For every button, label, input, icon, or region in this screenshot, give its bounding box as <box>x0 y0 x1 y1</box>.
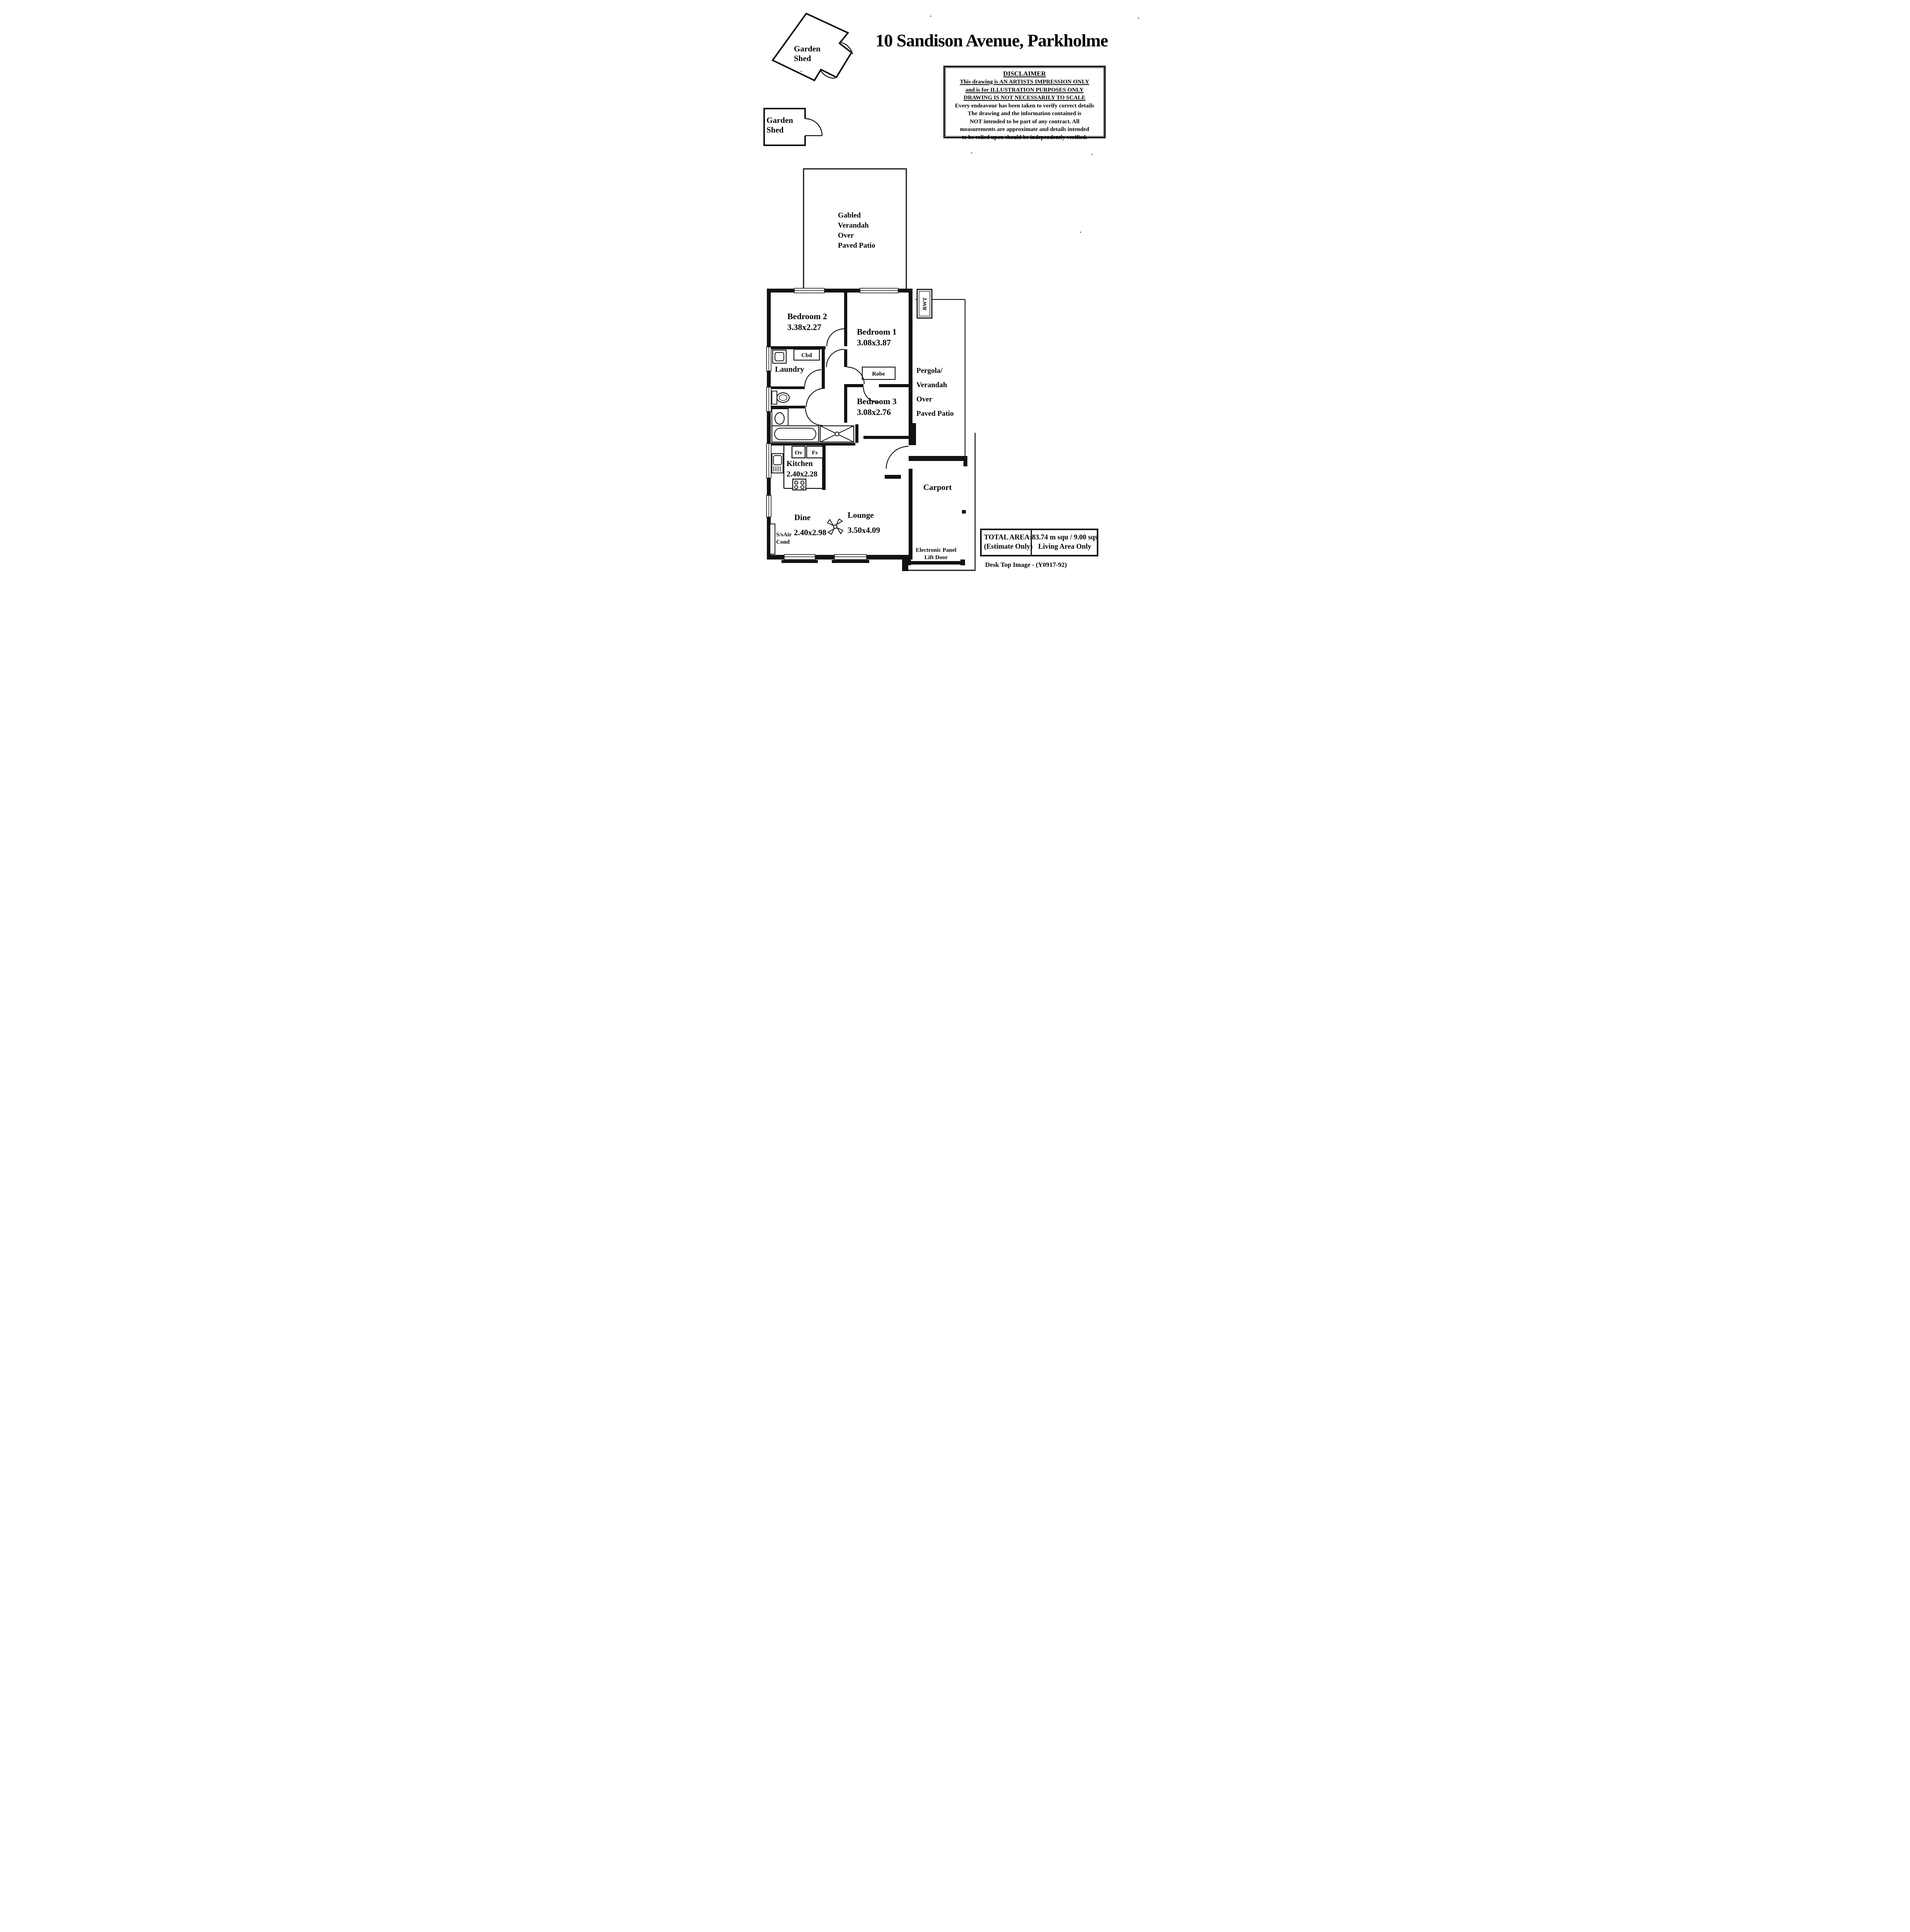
speck <box>1091 154 1093 155</box>
wc-door-arc <box>806 388 825 407</box>
bed1-label: Bedroom 1 <box>857 327 897 337</box>
fan-hub <box>834 525 837 529</box>
carport-wall-stub <box>963 461 967 466</box>
wall-entry-stub <box>885 475 901 479</box>
pergola-verandah: RWT Pergola/ Verandah Over Paved Patio <box>916 289 965 456</box>
total-area-value-line1: 83.74 m squ / 9.00 sqs <box>1032 533 1098 542</box>
total-area-value-line2: Living Area Only <box>1032 542 1098 551</box>
lift-door-label-line2: Lift Door <box>924 554 948 561</box>
shed1-label-line1: Garden <box>794 44 821 53</box>
garden-shed-2: Garden Shed <box>764 109 822 145</box>
wall-right-lower <box>909 469 913 560</box>
oven-label: Ov <box>795 450 802 456</box>
wall-laundry-bottom <box>767 386 805 389</box>
cooktop-burner <box>801 481 804 484</box>
cooktop-burner <box>801 486 804 489</box>
verandah-label-line2: Verandah <box>838 221 869 230</box>
wall-bed3-top-right <box>879 384 909 387</box>
total-area-values: 83.74 m squ / 9.00 sqs Living Area Only <box>1032 530 1098 555</box>
speck <box>930 15 931 17</box>
pergola-label-line2: Verandah <box>916 381 947 389</box>
lounge-dims: 3.50x4.09 <box>848 526 880 535</box>
speck <box>1138 17 1139 19</box>
carport-post-right <box>960 560 965 565</box>
disclaimer-body-line: Every endeavour has been taken to verify… <box>945 102 1104 110</box>
total-area-box: TOTAL AREA: (Estimate Only) 83.74 m squ … <box>980 529 1098 556</box>
bathtub-inner <box>775 428 816 440</box>
bath-door-arc <box>805 408 822 425</box>
bed1-door-arc <box>847 367 864 384</box>
disclaimer-underlined-line: DRAWING IS NOT NECESSARILY TO SCALE <box>945 94 1104 102</box>
speck <box>800 71 802 72</box>
aircon-label-line2: Cond <box>776 539 790 545</box>
disclaimer-body-line: to be relied upon should be independentl… <box>945 134 1104 142</box>
shed2-label-line1: Garden <box>766 116 793 125</box>
verandah-label-line1: Gabled <box>838 211 861 219</box>
disclaimer-body-line: NOT intended to be part of any contract.… <box>945 118 1104 126</box>
disclaimer-body-line: measurements are approximate and details… <box>945 126 1104 134</box>
lounge-label: Lounge <box>848 510 874 520</box>
pergola-outline <box>916 299 965 456</box>
dine-label: Dine <box>794 513 811 522</box>
disclaimer-box: DISCLAIMER This drawing is AN ARTISTS IM… <box>943 66 1106 138</box>
gabled-verandah: Gabled Verandah Over Paved Patio <box>804 169 906 289</box>
garden-shed-1: Garden Shed <box>773 14 853 80</box>
vanity-basin <box>775 413 784 424</box>
shed1-label-line2: Shed <box>794 54 811 63</box>
shower-drain <box>835 432 839 436</box>
bedroom2-label: Bedroom 2 <box>787 311 827 321</box>
pergola-label-line4: Paved Patio <box>916 410 954 418</box>
laundry-label: Laundry <box>775 365 804 374</box>
disclaimer-body-line: The drawing and the information containe… <box>945 110 1104 118</box>
wall-bath-bottom <box>767 443 855 446</box>
laundry-door-arc <box>805 370 821 386</box>
kitchen-label: Kitchen <box>787 459 813 468</box>
cooktop-burner <box>795 486 798 489</box>
wall-right-pier <box>909 423 916 445</box>
carport-top-wall <box>909 456 967 461</box>
aircon-label-line1: S/sAir <box>776 532 792 538</box>
verandah-label-line3: Over <box>838 231 854 240</box>
cupboard-label: Cbd <box>801 352 812 359</box>
dine-dims: 2.40x2.98 <box>794 528 826 537</box>
image-reference-footer: Desk Top Image - (Y0917-92) <box>985 561 1067 569</box>
wall-wc-bottom <box>767 406 805 408</box>
shed2-label-line2: Shed <box>766 125 784 134</box>
front-door-arc <box>886 446 909 469</box>
kitchen-sink-bowl <box>773 456 782 465</box>
pergola-label-line3: Over <box>916 395 933 403</box>
wall-bed3-left <box>844 384 847 423</box>
wall-bed3-top-left <box>844 384 863 387</box>
bed3-label: Bedroom 3 <box>857 396 897 406</box>
hall-door-arc <box>826 349 844 367</box>
page-title: 10 Sandison Avenue, Parkholme <box>874 30 1110 51</box>
panel-lift-door <box>908 561 963 565</box>
total-area-label-line2: (Estimate Only) <box>984 542 1031 551</box>
wall-hall-left <box>822 349 825 388</box>
wall-bath-right <box>855 424 858 443</box>
ceiling-fan <box>827 519 843 535</box>
bed2-door-arc <box>827 329 844 346</box>
robe-label: Robe <box>872 371 885 377</box>
total-area-labels: TOTAL AREA: (Estimate Only) <box>982 530 1032 555</box>
cooktop-burner <box>795 481 798 484</box>
carport: Carport Electronic Panel Lift Door <box>902 433 975 570</box>
wall-bottom-step <box>902 560 908 571</box>
shed2-door-arc <box>805 119 822 136</box>
fridge-space-label: Fs <box>812 450 818 456</box>
window-sill-left <box>782 560 818 563</box>
bed1-dims: 3.08x3.87 <box>857 338 891 347</box>
wall-bed3-bottom <box>863 436 909 439</box>
air-conditioner-unit <box>770 524 775 554</box>
disclaimer-heading: DISCLAIMER <box>945 70 1104 78</box>
laundry-trough-bowl <box>775 352 784 361</box>
wall-left <box>767 289 771 560</box>
verandah-label-line4: Paved Patio <box>838 241 875 250</box>
pergola-label-line1: Pergola/ <box>916 367 943 375</box>
bed3-dims: 3.08x2.76 <box>857 407 891 417</box>
toilet-bowl-inner <box>779 395 787 401</box>
kitchen-dims: 2.40x2.28 <box>787 470 817 478</box>
bedroom2-dims: 3.38x2.27 <box>787 322 821 332</box>
shed1-door-arc-2 <box>821 70 835 78</box>
window-sill-right <box>832 560 869 563</box>
wall-bed2-bottom <box>767 346 826 349</box>
disclaimer-underlined-line: and is for ILLUSTRATION PURPOSES ONLY <box>945 86 1104 94</box>
disclaimer-underlined-line: This drawing is AN ARTISTS IMPRESSION ON… <box>945 78 1104 86</box>
carport-label: Carport <box>923 483 952 492</box>
floor-plan-page: Garden Shed Garden Shed Gabled Verandah … <box>743 0 1167 601</box>
speck <box>971 152 972 153</box>
wall-right-upper <box>909 289 913 423</box>
rwt-label: RWT <box>922 297 928 310</box>
carport-post-mid <box>962 510 966 514</box>
fixtures: Cbd Robe Ov Fs <box>770 349 895 554</box>
toilet-cistern <box>772 391 777 404</box>
lift-door-label-line1: Electronic Panel <box>916 547 956 553</box>
speck <box>1080 231 1081 233</box>
total-area-label-line1: TOTAL AREA: <box>984 533 1031 542</box>
wall-bed1-left-upper <box>844 349 847 367</box>
wall-bed-divider <box>844 293 847 346</box>
